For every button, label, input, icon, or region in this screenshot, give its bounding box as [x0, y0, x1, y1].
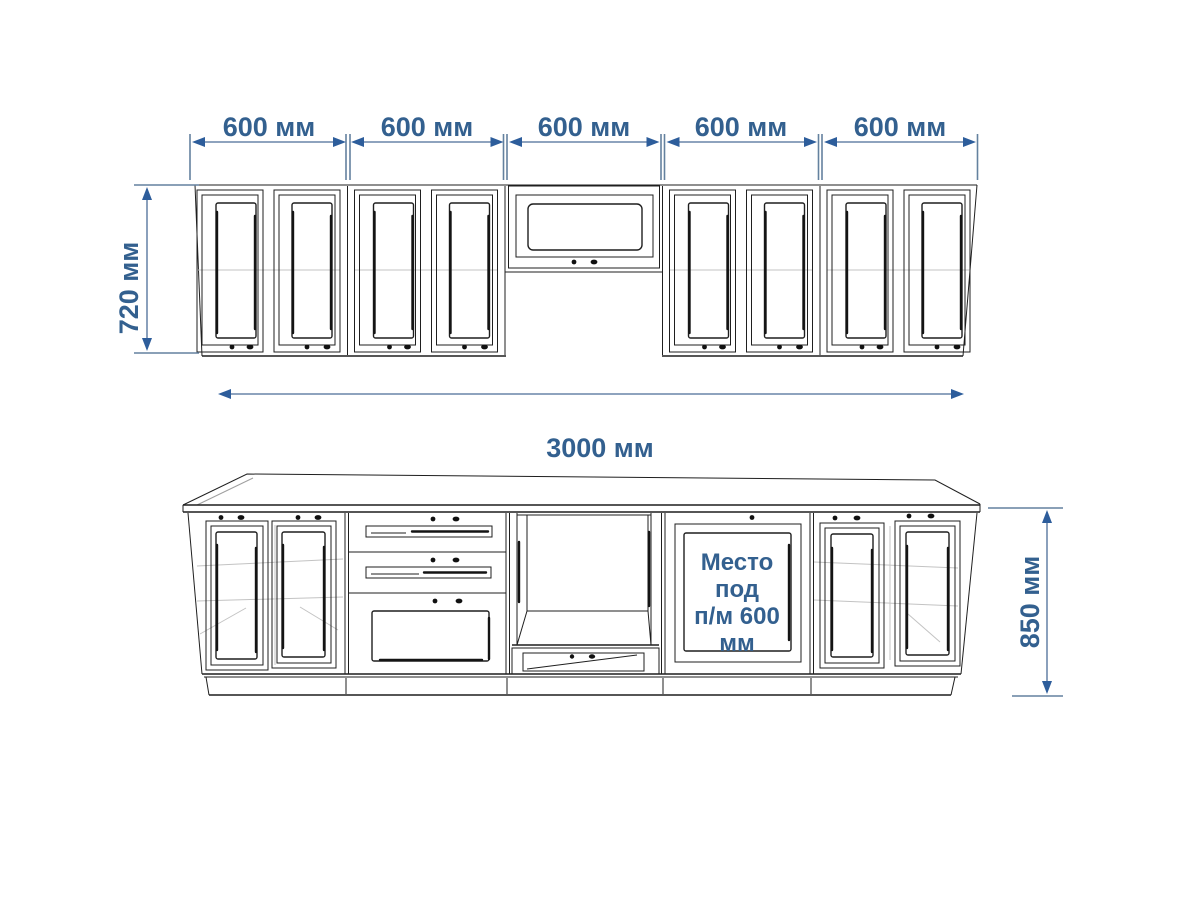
kitchen-cabinet-technical-drawing: 600 мм 600 мм 600 мм 600 мм 600 мм 720 м…: [0, 0, 1200, 900]
dim-label-600-2: 600 мм: [381, 112, 474, 142]
oven-niche: [512, 513, 659, 674]
dishwasher-space-text-line4: мм: [719, 630, 755, 657]
hood-cabinet: [505, 186, 663, 272]
dim-label-850: 850 мм: [1015, 556, 1045, 649]
niche-bottom-drawer: [512, 648, 659, 674]
dim-label-3000: 3000 мм: [546, 433, 654, 463]
drawer-stack: [349, 517, 507, 661]
dim-upper-height: 720 мм: [114, 185, 199, 353]
dishwasher-space-text-line3: п/м 600: [694, 603, 780, 630]
kitchen-drawing-canvas: 600 мм 600 мм 600 мм 600 мм 600 мм 720 м…: [0, 0, 1200, 900]
dishwasher-space-text-line1: Место: [701, 549, 773, 576]
plinth: [206, 677, 955, 695]
dim-upper-widths: 600 мм 600 мм 600 мм 600 мм 600 мм: [190, 112, 978, 180]
countertop: [183, 474, 980, 512]
base-cabinets-row: Место под п/м 600 мм: [183, 474, 980, 695]
dim-label-720: 720 мм: [114, 242, 144, 335]
base-doors-left: [197, 515, 343, 670]
base-doors-right: [814, 514, 960, 668]
dim-label-600-4: 600 мм: [695, 112, 788, 142]
dim-total-length: 3000 мм: [218, 389, 964, 463]
dim-base-height: 850 мм: [988, 508, 1063, 696]
dim-label-600-3: 600 мм: [538, 112, 631, 142]
dishwasher-panel: Место под п/м 600 мм: [675, 515, 801, 662]
upper-cabinets-row: [195, 185, 977, 356]
dim-label-600-5: 600 мм: [854, 112, 947, 142]
dishwasher-space-text-line2: под: [715, 576, 759, 603]
dim-label-600-1: 600 мм: [223, 112, 316, 142]
